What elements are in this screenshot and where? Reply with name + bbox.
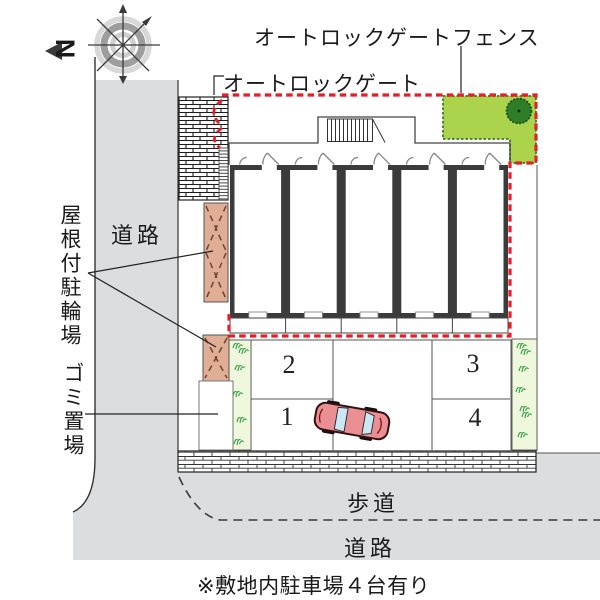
unit-row [230, 164, 508, 320]
car-icon [313, 398, 392, 443]
building [229, 117, 510, 333]
balcony-strip [230, 318, 508, 333]
sidewalk-label: 歩道 [347, 486, 399, 518]
covered-bicycle-parking-label: 屋根付駐輪場 [54, 204, 84, 348]
parking-space-2-number: 2 [274, 350, 304, 380]
parking-space-4-number: 4 [460, 403, 490, 433]
grass-strip-right [512, 339, 537, 450]
entrance-door-swings [240, 153, 501, 165]
autolock-gate-label: オートロックゲート [223, 68, 421, 98]
unit-5 [457, 170, 504, 313]
unit-4 [401, 170, 448, 313]
garbage-area-label: ゴミ置場 [57, 362, 87, 458]
unit-2 [290, 170, 337, 313]
staircase [328, 119, 386, 143]
parking-space-3-number: 3 [458, 349, 488, 379]
bicycle-rack-strip [219, 148, 228, 200]
parking-space-1-number: 1 [272, 402, 302, 432]
road-left-label: 道路 [111, 218, 163, 250]
sidewalk-paving [178, 451, 536, 472]
site-plan: オートロックゲートフェンス オートロックゲート 屋根付駐輪場 道路 ゴミ置場 歩… [0, 0, 600, 600]
road-bottom-label: 道路 [344, 531, 396, 563]
autolock-gate-fence-label: オートロックゲートフェンス [254, 22, 540, 52]
site-note: ※敷地内駐車場４台有り [197, 570, 430, 600]
unit-1 [235, 170, 282, 313]
garbage-area-box [199, 381, 233, 450]
unit-3 [346, 170, 393, 313]
compass-north-letter: N [50, 39, 81, 59]
